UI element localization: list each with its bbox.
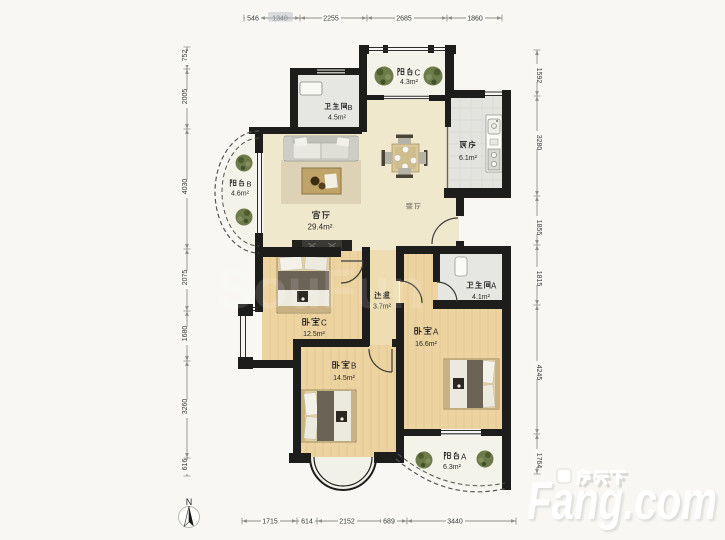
svg-text:546: 546: [247, 16, 259, 23]
svg-text:B: B: [348, 103, 353, 112]
svg-text:4.3m²: 4.3m²: [400, 79, 419, 86]
svg-text:2255: 2255: [323, 16, 339, 23]
svg-text:1680: 1680: [182, 326, 189, 342]
svg-text:1815: 1815: [535, 271, 542, 287]
svg-text:752: 752: [182, 50, 189, 62]
svg-text:6.3m²: 6.3m²: [443, 464, 462, 471]
svg-text:16.6m²: 16.6m²: [415, 341, 437, 348]
svg-text:12.5m²: 12.5m²: [303, 331, 325, 338]
svg-text:4030: 4030: [182, 179, 189, 195]
svg-text:4.6m²: 4.6m²: [231, 191, 250, 198]
svg-text:689: 689: [383, 519, 395, 526]
svg-text:A: A: [433, 328, 439, 337]
svg-text:6.1m²: 6.1m²: [459, 155, 478, 162]
svg-text:B: B: [247, 180, 252, 189]
svg-text:2152: 2152: [339, 519, 355, 526]
svg-text:4.5m²: 4.5m²: [328, 115, 347, 122]
svg-text:A: A: [461, 453, 467, 462]
svg-text:2685: 2685: [396, 16, 412, 23]
svg-text:1715: 1715: [262, 519, 278, 526]
svg-text:3280: 3280: [535, 135, 542, 151]
svg-text:616: 616: [182, 459, 189, 471]
svg-text:1855: 1855: [535, 220, 542, 236]
svg-text:14.5m²: 14.5m²: [333, 375, 355, 382]
svg-text:B: B: [351, 362, 356, 371]
svg-text:SouFun: SouFun: [216, 257, 424, 320]
svg-text:2075: 2075: [182, 270, 189, 286]
svg-text:3260: 3260: [182, 399, 189, 415]
svg-text:1592: 1592: [535, 68, 542, 84]
svg-text:614: 614: [301, 519, 313, 526]
svg-text:4.1m²: 4.1m²: [472, 294, 491, 301]
svg-text:1860: 1860: [467, 16, 483, 23]
svg-text:4245: 4245: [535, 365, 542, 381]
svg-text:1764: 1764: [535, 453, 542, 469]
svg-text:2005: 2005: [182, 89, 189, 105]
svg-text:C: C: [415, 69, 421, 78]
svg-text:A: A: [491, 282, 497, 291]
svg-text:3440: 3440: [447, 519, 463, 526]
svg-text:N: N: [186, 497, 193, 507]
svg-text:29.4m²: 29.4m²: [308, 223, 333, 232]
svg-text:1340: 1340: [272, 16, 288, 23]
